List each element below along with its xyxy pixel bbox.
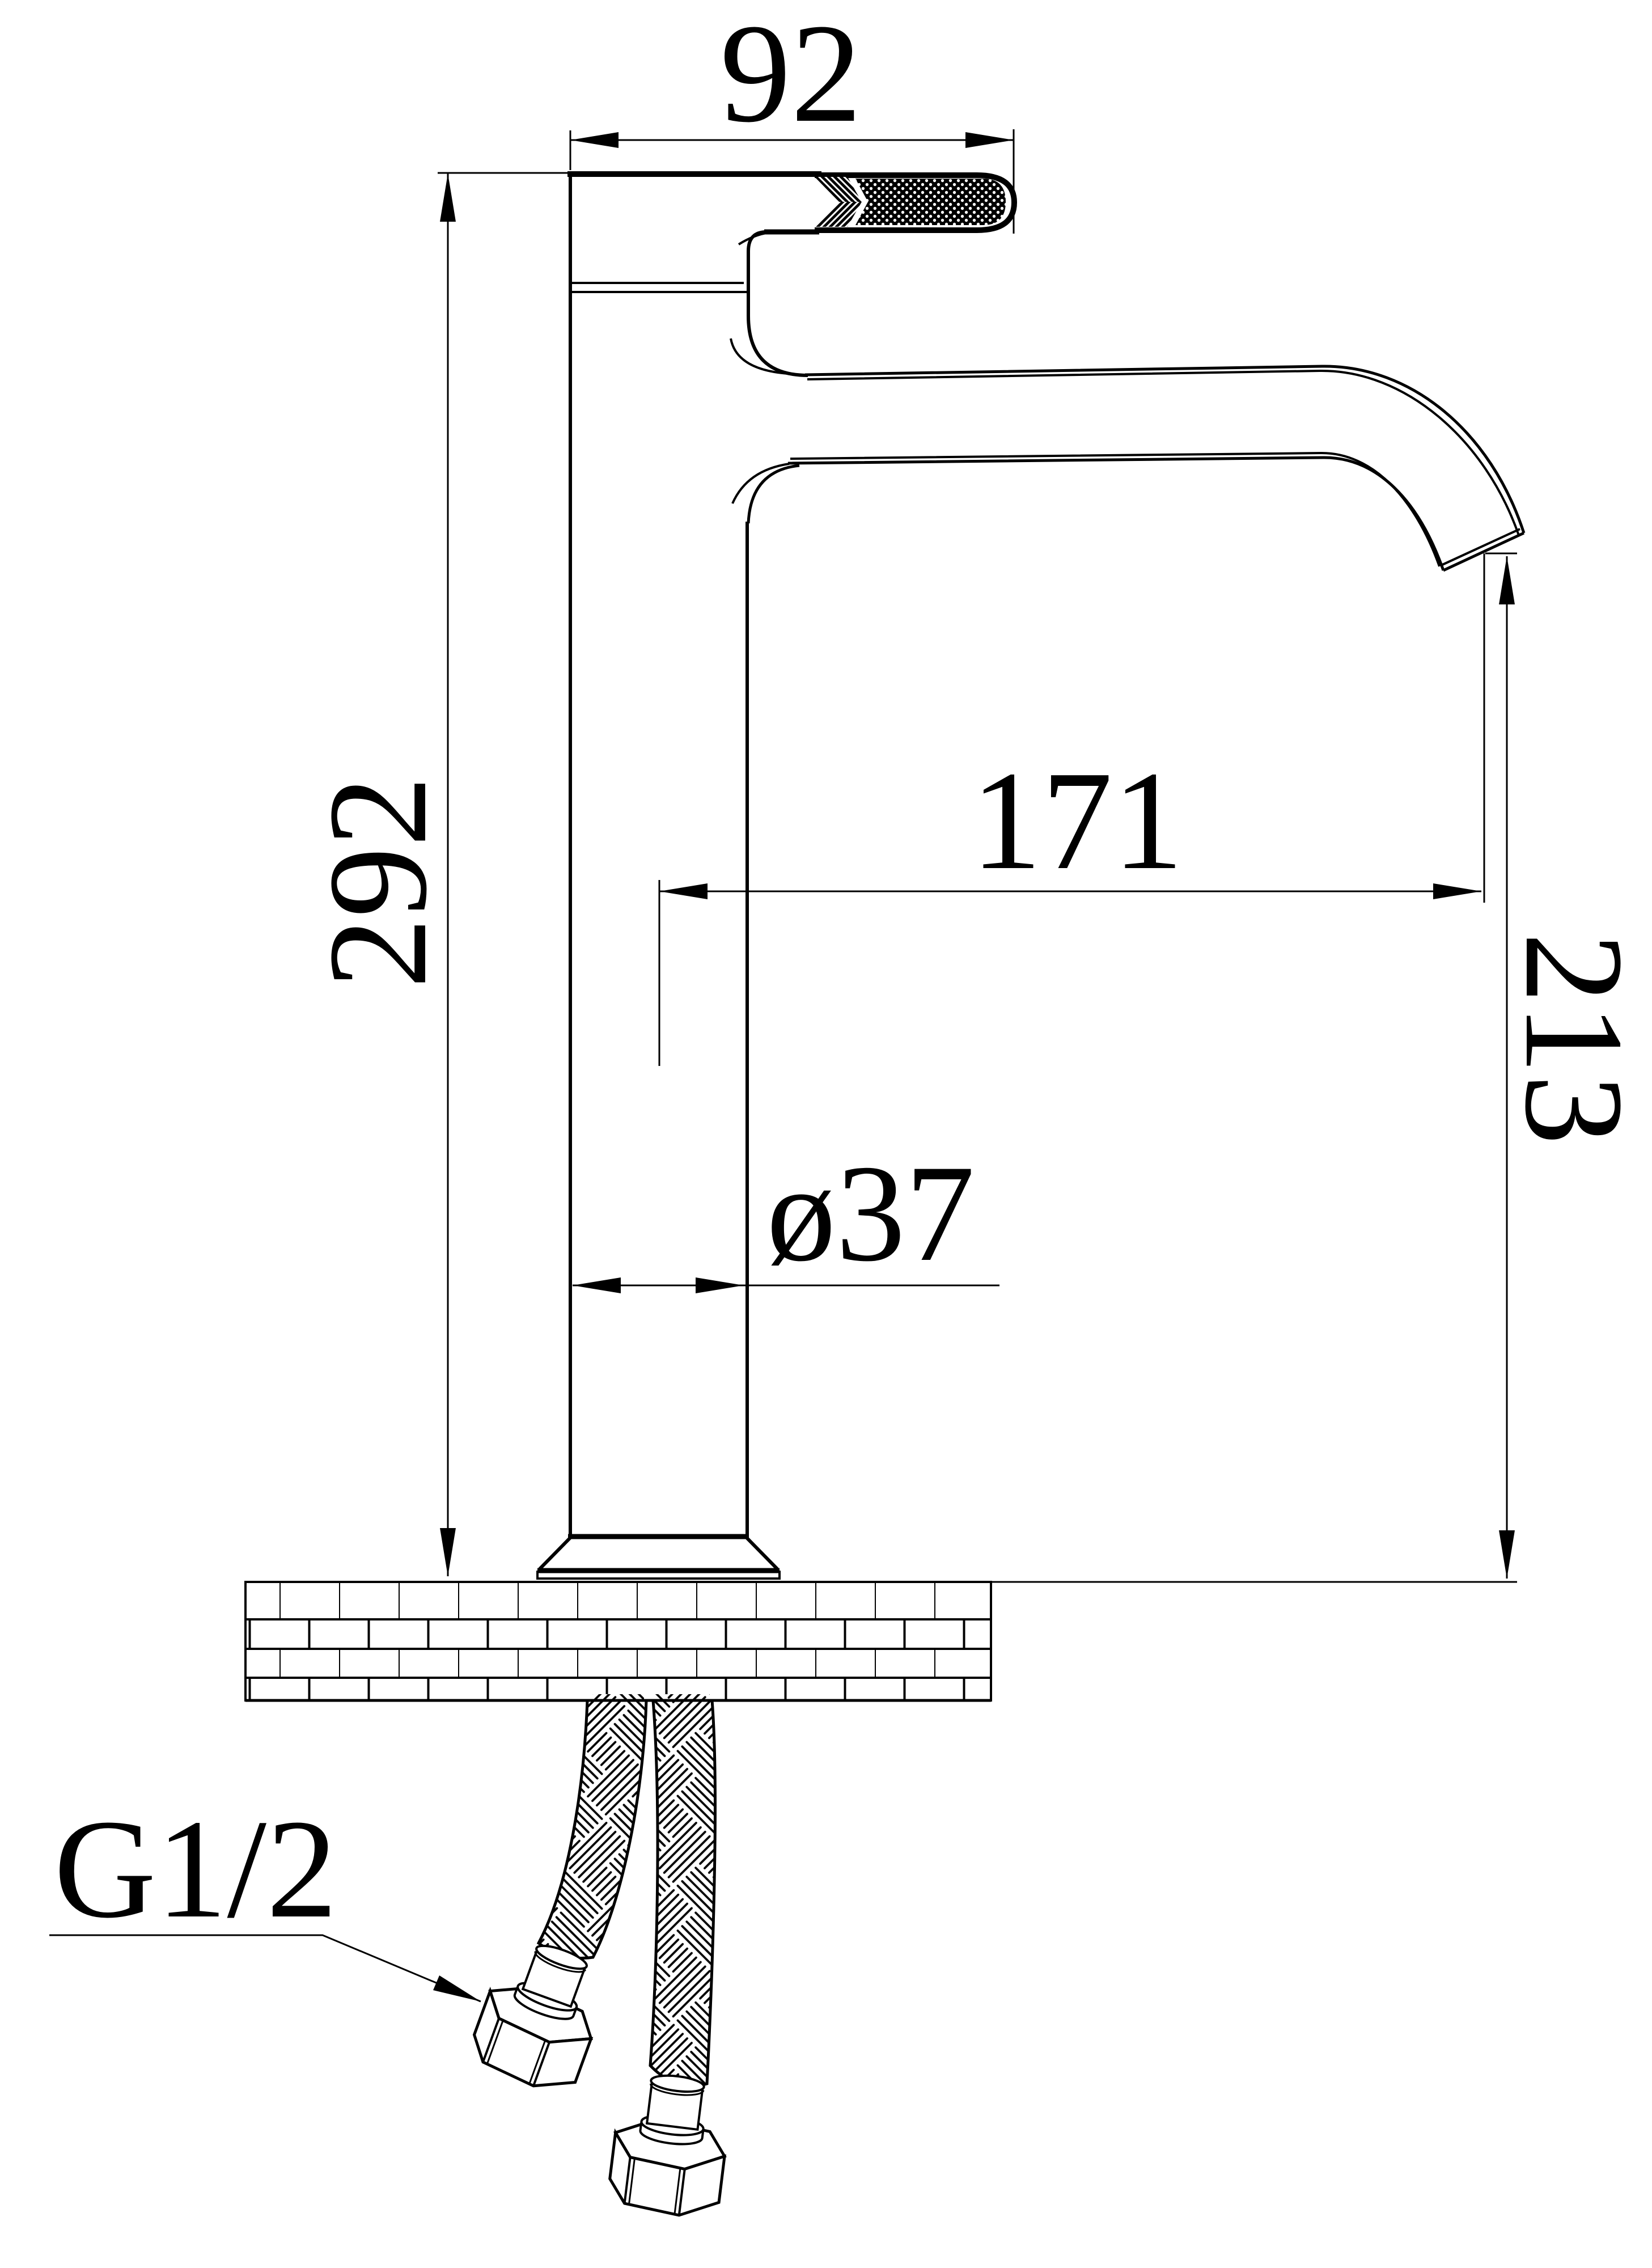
svg-text:ø37: ø37: [766, 1136, 975, 1290]
svg-text:171: 171: [971, 742, 1184, 899]
svg-text:292: 292: [299, 776, 456, 989]
svg-text:G1/2: G1/2: [54, 1791, 337, 1948]
svg-text:92: 92: [720, 0, 862, 152]
svg-text:213: 213: [1496, 933, 1652, 1145]
